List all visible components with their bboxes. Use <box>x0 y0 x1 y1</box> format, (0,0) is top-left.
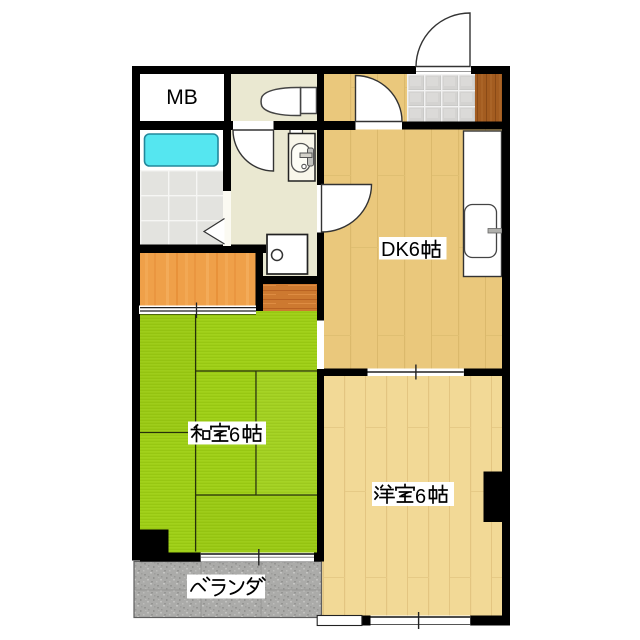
svg-text:6: 6 <box>229 425 240 447</box>
svg-text:MB: MB <box>166 86 198 109</box>
svg-text:6: 6 <box>415 486 426 508</box>
svg-text:DK6: DK6 <box>381 239 420 261</box>
